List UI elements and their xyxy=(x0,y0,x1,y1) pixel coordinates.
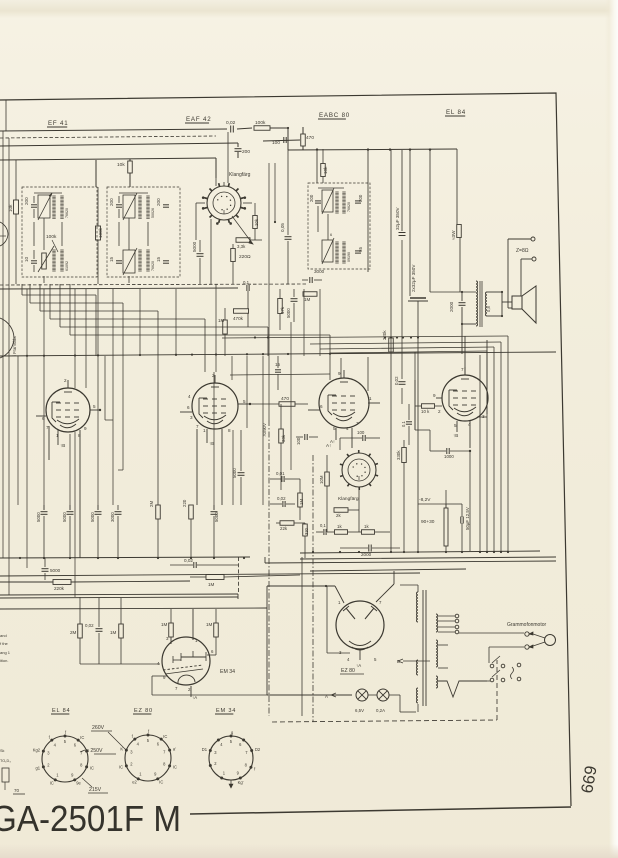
svg-text:2k: 2k xyxy=(336,513,341,518)
svg-text:Klangfärg: Klangfärg xyxy=(229,172,251,178)
svg-text:e2: e2 xyxy=(132,780,137,785)
svg-text:↑B: ↑B xyxy=(453,433,458,438)
svg-text:50μF 12,5V: 50μF 12,5V xyxy=(465,507,470,530)
svg-text:8: 8 xyxy=(228,428,231,433)
svg-text:76620: 76620 xyxy=(347,202,351,212)
svg-text:1M: 1M xyxy=(206,622,213,627)
svg-text:2: 2 xyxy=(212,373,215,378)
svg-text:5000: 5000 xyxy=(232,468,237,478)
svg-text:4: 4 xyxy=(54,742,57,747)
svg-text:10k: 10k xyxy=(254,218,259,226)
svg-text:200: 200 xyxy=(109,198,114,206)
svg-text:4: 4 xyxy=(347,657,350,662)
svg-text:f the: f the xyxy=(0,641,9,646)
svg-text:K: K xyxy=(120,746,123,751)
svg-text:669: 669 xyxy=(578,764,601,794)
svg-text:2: 2 xyxy=(438,409,441,414)
svg-text:1M: 1M xyxy=(161,622,168,627)
svg-text:f: f xyxy=(65,730,67,735)
svg-text:EZ 80: EZ 80 xyxy=(134,708,153,714)
svg-text:5: 5 xyxy=(64,739,67,744)
svg-text:1: 1 xyxy=(369,396,372,401)
svg-text:0,1: 0,1 xyxy=(320,523,326,528)
svg-text:3: 3 xyxy=(47,751,50,756)
svg-text:4: 4 xyxy=(157,661,160,666)
svg-text:ition.: ition. xyxy=(0,658,8,663)
svg-text:f: f xyxy=(148,729,150,734)
svg-text:7: 7 xyxy=(379,600,382,605)
svg-text:↑B: ↑B xyxy=(60,443,65,448)
svg-text:2: 2 xyxy=(214,761,217,766)
svg-text:90+30: 90+30 xyxy=(421,519,435,525)
svg-text:10: 10 xyxy=(24,256,29,262)
svg-text:220k: 220k xyxy=(382,330,387,340)
svg-text:1000: 1000 xyxy=(444,454,454,459)
svg-text:5000: 5000 xyxy=(36,512,41,522)
svg-text:0,1: 0,1 xyxy=(401,421,406,427)
svg-text:8: 8 xyxy=(80,763,83,768)
svg-text:A: A xyxy=(325,694,328,699)
svg-text:4: 4 xyxy=(188,394,191,399)
svg-text:100: 100 xyxy=(272,140,280,146)
svg-text:↑A: ↑A xyxy=(356,663,361,668)
svg-text:5000: 5000 xyxy=(90,512,95,522)
svg-text:70: 70 xyxy=(14,788,20,793)
svg-text:1M: 1M xyxy=(218,318,225,323)
svg-text:76620: 76620 xyxy=(151,261,155,271)
svg-text:0,02: 0,02 xyxy=(85,623,94,628)
svg-text:2: 2 xyxy=(47,763,50,768)
svg-text:1M: 1M xyxy=(304,297,311,302)
svg-text:7: 7 xyxy=(356,421,359,426)
svg-text:IC: IC xyxy=(119,765,123,770)
svg-text:Z=8Ω: Z=8Ω xyxy=(516,248,529,254)
svg-text:3: 3 xyxy=(214,750,217,755)
svg-text:2000: 2000 xyxy=(449,301,454,312)
svg-text:7: 7 xyxy=(461,367,464,372)
svg-text:and: and xyxy=(0,633,7,638)
svg-text:5: 5 xyxy=(93,404,96,409)
svg-text:3,3k: 3,3k xyxy=(237,244,246,249)
svg-text:D1: D1 xyxy=(202,747,208,752)
svg-text:1k: 1k xyxy=(364,524,369,529)
svg-text:A↑: A↑ xyxy=(330,439,335,444)
svg-text:5000: 5000 xyxy=(62,512,67,522)
svg-text:EZ 80: EZ 80 xyxy=(341,668,355,674)
svg-text:EM 34: EM 34 xyxy=(216,708,236,714)
svg-text:0,02: 0,02 xyxy=(226,120,236,126)
svg-text:3: 3 xyxy=(482,414,485,419)
svg-text:GA-2501F M: GA-2501F M xyxy=(0,798,181,839)
svg-text:7: 7 xyxy=(175,686,178,691)
svg-text:i Framsida: i Framsida xyxy=(12,336,17,356)
svg-text:09190: 09190 xyxy=(347,252,351,262)
svg-text:2: 2 xyxy=(64,378,67,383)
svg-text:8: 8 xyxy=(78,433,81,438)
svg-text:↑B: ↑B xyxy=(209,441,214,446)
svg-text:3: 3 xyxy=(130,750,133,755)
svg-text:3000: 3000 xyxy=(110,512,115,522)
svg-text:EM 34: EM 34 xyxy=(220,669,235,675)
svg-text:1: 1 xyxy=(223,771,226,776)
svg-text:9: 9 xyxy=(84,426,87,431)
svg-text:1M: 1M xyxy=(110,630,117,635)
svg-text:f: f xyxy=(254,766,256,771)
svg-text:330: 330 xyxy=(304,527,309,535)
svg-text:260V: 260V xyxy=(92,725,105,731)
svg-text:1M: 1M xyxy=(208,582,215,587)
svg-text:50026: 50026 xyxy=(151,208,155,218)
svg-text:220k: 220k xyxy=(54,586,65,591)
svg-text:61092: 61092 xyxy=(65,261,69,271)
svg-text:0,2A: 0,2A xyxy=(376,708,385,713)
svg-text:100: 100 xyxy=(357,430,365,435)
svg-text:10 k: 10 k xyxy=(421,409,430,414)
svg-text:D2: D2 xyxy=(255,747,261,752)
svg-text:1: 1 xyxy=(56,433,59,438)
svg-text:5000: 5000 xyxy=(192,241,197,252)
svg-text:100: 100 xyxy=(296,437,301,445)
svg-text:10k: 10k xyxy=(323,166,328,174)
svg-text:200: 200 xyxy=(156,198,161,206)
svg-text:1: 1 xyxy=(56,772,59,777)
svg-text:6: 6 xyxy=(239,742,242,747)
svg-text:200: 200 xyxy=(309,194,314,202)
svg-text:≈3W: ≈3W xyxy=(451,230,456,240)
svg-text:5: 5 xyxy=(374,657,377,662)
svg-text:10k: 10k xyxy=(117,162,125,168)
svg-text:470: 470 xyxy=(281,396,289,402)
svg-text:6: 6 xyxy=(211,649,214,654)
svg-text:EAF 42: EAF 42 xyxy=(186,116,211,123)
svg-text:100k: 100k xyxy=(46,234,57,240)
svg-text:200: 200 xyxy=(24,197,29,205)
svg-text:2M: 2M xyxy=(70,630,77,635)
svg-text:2: 2 xyxy=(130,762,133,767)
svg-text:7: 7 xyxy=(245,750,248,755)
svg-text:Kg2: Kg2 xyxy=(33,747,41,752)
svg-text:5: 5 xyxy=(147,738,150,743)
svg-text:8: 8 xyxy=(245,763,248,768)
svg-text:6: 6 xyxy=(42,416,45,421)
svg-text:IC: IC xyxy=(163,734,167,739)
svg-text:TO₁D₃: TO₁D₃ xyxy=(0,759,11,763)
svg-text:9: 9 xyxy=(338,371,341,376)
svg-text:200: 200 xyxy=(358,194,363,202)
svg-text:4: 4 xyxy=(468,422,471,427)
svg-text:7: 7 xyxy=(163,750,166,755)
svg-text:4: 4 xyxy=(220,742,223,747)
svg-text:2M: 2M xyxy=(149,501,154,507)
svg-text:5000: 5000 xyxy=(286,308,291,318)
svg-text:9: 9 xyxy=(154,771,157,776)
svg-text:100k: 100k xyxy=(255,120,266,126)
svg-text:6: 6 xyxy=(74,742,77,747)
svg-text:1: 1 xyxy=(139,771,142,776)
svg-text:8: 8 xyxy=(163,762,166,767)
svg-text:6: 6 xyxy=(187,405,190,410)
svg-text:g1: g1 xyxy=(36,766,41,771)
svg-text:3000: 3000 xyxy=(314,269,325,274)
svg-text:IC: IC xyxy=(173,765,177,770)
svg-text:IC: IC xyxy=(159,780,163,785)
svg-text:↑A: ↑A xyxy=(192,695,197,700)
svg-text:Kg': Kg' xyxy=(238,780,244,785)
svg-text:330k: 330k xyxy=(396,450,401,460)
svg-text:a': a' xyxy=(173,746,176,751)
svg-text:15: 15 xyxy=(156,256,161,262)
svg-text:5: 5 xyxy=(230,739,233,744)
svg-text:15: 15 xyxy=(109,256,114,262)
svg-text:EABC 80: EABC 80 xyxy=(319,112,350,119)
svg-text:5: 5 xyxy=(243,399,246,404)
svg-text:a 250V: a 250V xyxy=(86,748,103,754)
svg-text:f: f xyxy=(49,735,51,740)
svg-text:g: g xyxy=(231,730,234,735)
svg-text:0,05: 0,05 xyxy=(280,223,285,232)
svg-text:10M: 10M xyxy=(319,475,324,484)
svg-text:9: 9 xyxy=(71,772,74,777)
svg-text:76620: 76620 xyxy=(65,208,69,218)
svg-text:47k: 47k xyxy=(280,306,285,314)
svg-text:32μF 350V: 32μF 350V xyxy=(395,206,400,230)
svg-text:0,8: 0,8 xyxy=(486,306,491,312)
svg-text:0,02: 0,02 xyxy=(184,558,193,563)
svg-text:1k: 1k xyxy=(337,524,342,529)
svg-text:Grammofonmotor: Grammofonmotor xyxy=(507,622,547,628)
svg-text:9: 9 xyxy=(237,771,240,776)
svg-text:EL 84: EL 84 xyxy=(52,708,70,714)
svg-text:3: 3 xyxy=(339,650,342,655)
svg-text:9: 9 xyxy=(433,393,436,398)
svg-text:6: 6 xyxy=(330,233,332,237)
svg-text:22k: 22k xyxy=(280,526,288,531)
svg-text:0,02: 0,02 xyxy=(394,376,399,385)
svg-text:215V: 215V xyxy=(89,787,102,793)
svg-text:f: f xyxy=(132,734,134,739)
svg-text:220Ω: 220Ω xyxy=(239,254,251,260)
svg-text:-8,2V: -8,2V xyxy=(419,497,431,503)
svg-text:200: 200 xyxy=(242,149,250,155)
svg-text:1: 1 xyxy=(338,600,341,605)
svg-text:IC: IC xyxy=(80,735,84,740)
svg-text:3: 3 xyxy=(190,415,193,420)
svg-text:470: 470 xyxy=(306,135,314,141)
svg-text:70/90V: 70/90V xyxy=(262,423,267,437)
svg-text:470k: 470k xyxy=(233,316,244,321)
svg-text:7: 7 xyxy=(196,424,199,429)
svg-text:5000: 5000 xyxy=(214,512,219,522)
svg-text:ang 1: ang 1 xyxy=(0,650,11,655)
svg-text:IC: IC xyxy=(90,766,94,771)
svg-text:5000: 5000 xyxy=(50,568,61,573)
svg-text:EF 41: EF 41 xyxy=(48,120,69,127)
svg-text:6: 6 xyxy=(320,404,323,409)
svg-text:220: 220 xyxy=(182,499,187,507)
svg-text:1M: 1M xyxy=(299,499,304,505)
svg-text:2x32μF 350V: 2x32μF 350V xyxy=(411,264,416,292)
svg-text:4: 4 xyxy=(346,426,349,431)
svg-text:Klangfärg: Klangfärg xyxy=(338,496,359,502)
svg-text:0,02: 0,02 xyxy=(277,496,286,501)
svg-text:33k: 33k xyxy=(281,434,286,442)
svg-text:9e: 9e xyxy=(76,781,81,786)
svg-text:100k: 100k xyxy=(98,227,103,238)
svg-text:6: 6 xyxy=(157,741,160,746)
svg-text:EL 84: EL 84 xyxy=(446,109,466,116)
svg-text:0,01: 0,01 xyxy=(276,471,285,476)
svg-text:55: 55 xyxy=(358,247,363,252)
svg-text:Sk: Sk xyxy=(0,749,5,753)
svg-text:IC: IC xyxy=(50,781,54,786)
svg-text:6,5V: 6,5V xyxy=(355,708,364,713)
svg-text:4: 4 xyxy=(137,741,140,746)
svg-text:1: 1 xyxy=(203,428,206,433)
